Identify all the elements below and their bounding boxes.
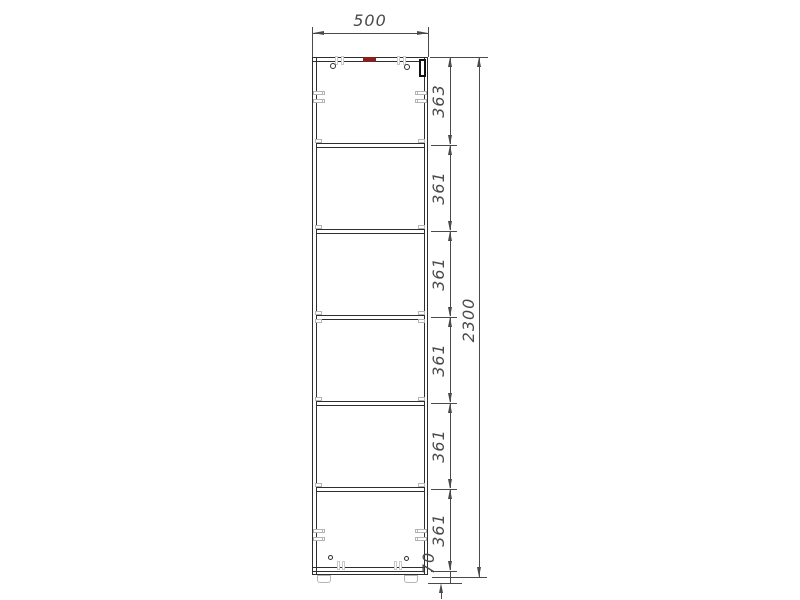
shelf-support-icon [418, 319, 425, 323]
dimension-line [450, 490, 451, 570]
dowel-icon [397, 56, 400, 65]
arrow-down-icon [448, 561, 452, 571]
cam-lock-icon [313, 91, 325, 95]
plinth-dimension-label: 70 [421, 548, 437, 578]
shelf-support-icon [418, 311, 425, 315]
shelf-line [317, 229, 424, 234]
shelf-support-icon [315, 319, 322, 323]
arrow-up-icon [448, 231, 452, 241]
screw-hole-icon [330, 63, 336, 69]
dowel-icon [394, 561, 397, 570]
segment-dimension-label: 361 [431, 231, 447, 317]
segment-dimension-label: 361 [431, 145, 447, 231]
extension-line [428, 27, 429, 57]
arrow-up-icon [448, 489, 452, 499]
shelf-line [317, 487, 424, 492]
cam-lock-icon [415, 537, 427, 541]
arrow-up-icon [448, 57, 452, 67]
arrow-up-icon [448, 317, 452, 327]
shelf-line [317, 401, 424, 406]
dimension-line [450, 58, 451, 144]
cam-lock-icon [415, 99, 427, 103]
cam-lock-icon [415, 91, 427, 95]
dowel-icon [341, 56, 344, 65]
shelf-support-icon [418, 139, 425, 143]
dimension-line [450, 146, 451, 230]
shelf-support-icon [315, 311, 322, 315]
extension-line [428, 583, 462, 584]
shelf-support-icon [315, 139, 322, 143]
arrow-up-icon [477, 57, 481, 67]
segment-dimension-label: 361 [431, 317, 447, 403]
dimension-line [441, 592, 442, 599]
extension-line [432, 577, 487, 578]
foot-icon [404, 575, 418, 583]
foot-icon [317, 575, 331, 583]
height-dimension-label: 2300 [461, 260, 477, 380]
dimension-line [450, 232, 451, 316]
arrow-down-icon [448, 221, 452, 231]
bottom-panel-inner-edge [313, 571, 424, 572]
cam-lock-icon [313, 99, 325, 103]
shelf-line [317, 143, 424, 148]
bottom-panel-top-edge [313, 567, 424, 568]
dimension-line [479, 58, 480, 577]
cam-lock-icon [415, 529, 427, 533]
arrow-down-icon [477, 567, 481, 577]
arrow-down-icon [448, 135, 452, 145]
dowel-icon [337, 561, 340, 570]
arrow-down-icon [448, 307, 452, 317]
dimension-line [450, 318, 451, 402]
shelf-support-icon [315, 397, 322, 401]
arrow-up-icon [448, 145, 452, 155]
width-dimension-label: 500 [312, 13, 428, 29]
dimension-line [450, 404, 451, 488]
shelf-support-icon [418, 225, 425, 229]
red-marker-icon [363, 57, 376, 62]
shelf-support-icon [315, 483, 322, 487]
drawing-canvas: 500 363 361 361 361 361 361 70 2300 [0, 0, 800, 600]
segment-dimension-label: 363 [431, 58, 447, 144]
segment-dimension-label: 361 [431, 403, 447, 489]
shelf-support-icon [418, 483, 425, 487]
shelf-line [317, 315, 424, 320]
screw-hole-icon [404, 64, 410, 70]
screw-hole-icon [328, 555, 333, 560]
cam-lock-icon [313, 537, 325, 541]
dowel-icon [399, 561, 402, 570]
dimension-line [312, 33, 429, 34]
cam-lock-icon [313, 529, 325, 533]
shelf-support-icon [315, 225, 322, 229]
right-panel-inner-edge [424, 58, 425, 574]
screw-hole-icon [404, 556, 409, 561]
arrow-up-icon [448, 403, 452, 413]
arrow-right-icon [417, 31, 428, 35]
arrow-left-icon [313, 31, 324, 35]
arrow-down-icon [448, 393, 452, 403]
hinge-plate-icon [419, 59, 426, 77]
shelf-support-icon [418, 397, 425, 401]
arrow-down-icon [448, 479, 452, 489]
dowel-icon [342, 561, 345, 570]
